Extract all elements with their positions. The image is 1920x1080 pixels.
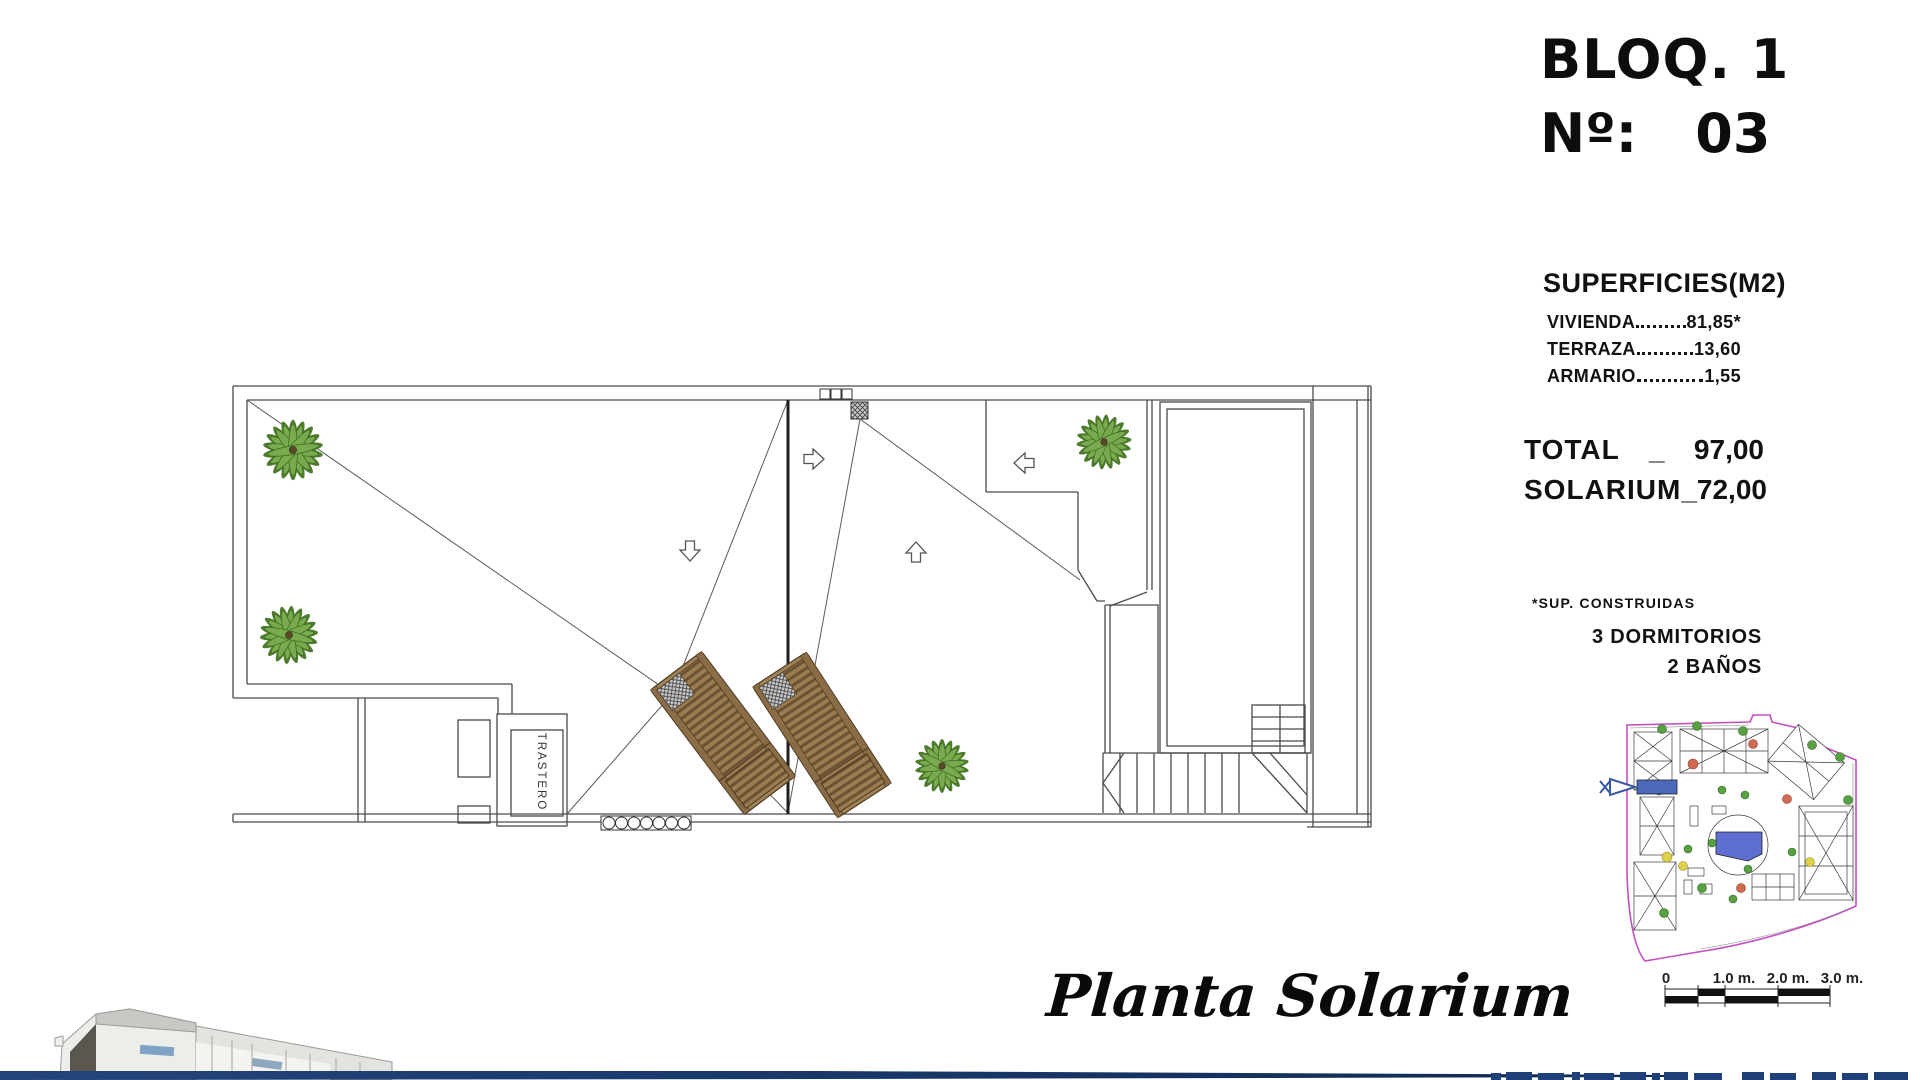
building-render <box>55 1009 392 1080</box>
total-value: 97,00 <box>1694 434 1764 466</box>
palm-tree <box>262 420 324 481</box>
plan-title: Planta Solarium <box>1038 962 1583 1030</box>
bathrooms-line: 2 BAÑOS <box>1500 652 1762 682</box>
total-row: TOTAL _ 97,00 <box>1524 434 1764 474</box>
surface-label: ARMARIO <box>1547 366 1636 387</box>
total-value: 72,00 <box>1697 474 1767 506</box>
unit-number: 03 <box>1695 102 1770 165</box>
totals-table: TOTAL _ 97,00 SOLARIUM _ 72,00 <box>1524 434 1764 514</box>
footer-bar <box>0 1071 1676 1080</box>
stairs <box>1103 705 1311 813</box>
surface-row: ARMARIO 1,55 <box>1547 366 1741 393</box>
palm-tree <box>904 728 981 805</box>
surfaces-table: VIVIENDA 81,85* TERRAZA 13,60 ARMARIO 1,… <box>1547 312 1741 393</box>
surfaces-title: SUPERFICIES(M2) <box>1543 268 1773 299</box>
scale-label: 3.0 m. <box>1821 970 1864 987</box>
arrow-left-icon <box>1014 453 1034 473</box>
scale-label: 1.0 m. <box>1713 970 1756 987</box>
partial-logo <box>1491 1072 1908 1080</box>
unit-number-line: Nº: 03 <box>1540 102 1840 165</box>
surface-value: 81,85* <box>1687 312 1741 333</box>
palm-tree <box>1070 408 1138 476</box>
dotted-leader <box>1636 325 1685 328</box>
total-separator: _ <box>1620 434 1694 466</box>
neighbour-terrace <box>1160 402 1311 753</box>
scale-label: 0 <box>1662 970 1670 987</box>
slope-arrows <box>680 449 1034 562</box>
dotted-leader <box>1637 379 1704 382</box>
storage-label: TRASTERO <box>535 733 547 812</box>
surface-label: TERRAZA <box>1547 339 1636 360</box>
total-separator: _ <box>1681 474 1697 506</box>
palm-tree <box>250 596 328 674</box>
surface-value: 1,55 <box>1704 366 1741 387</box>
rooms-summary: 3 DORMITORIOS 2 BAÑOS <box>1500 622 1762 682</box>
dotted-leader <box>1637 352 1693 355</box>
total-label: TOTAL <box>1524 434 1620 466</box>
surface-label: VIVIENDA <box>1547 312 1635 333</box>
surface-row: VIVIENDA 81,85* <box>1547 312 1741 339</box>
arrow-down-icon <box>680 541 700 561</box>
storage-room <box>497 714 567 826</box>
site-plan-minimap <box>1600 715 1856 961</box>
chimney-hatch <box>851 402 868 419</box>
surface-value: 13,60 <box>1694 339 1741 360</box>
construida-footnote: *SUP. CONSTRUIDAS <box>1532 595 1792 611</box>
arrow-right-icon <box>804 449 824 469</box>
total-label: SOLARIUM <box>1524 474 1681 506</box>
block-title: BLOQ. 1 <box>1540 28 1840 91</box>
plan-sheet: TRASTERO <box>0 0 1920 1080</box>
bedrooms-line: 3 DORMITORIOS <box>1500 622 1762 652</box>
roof-vent <box>820 389 852 399</box>
total-row: SOLARIUM _ 72,00 <box>1524 474 1764 514</box>
hedge-strip <box>601 816 691 830</box>
scale-bar: 0 1.0 m. 2.0 m. 3.0 m. <box>1662 970 1863 1007</box>
unit-location-marker <box>1637 780 1677 794</box>
unit-number-prefix: Nº: <box>1540 102 1637 165</box>
scale-label: 2.0 m. <box>1767 970 1810 987</box>
arrow-up-icon <box>906 542 926 562</box>
surface-row: TERRAZA 13,60 <box>1547 339 1741 366</box>
